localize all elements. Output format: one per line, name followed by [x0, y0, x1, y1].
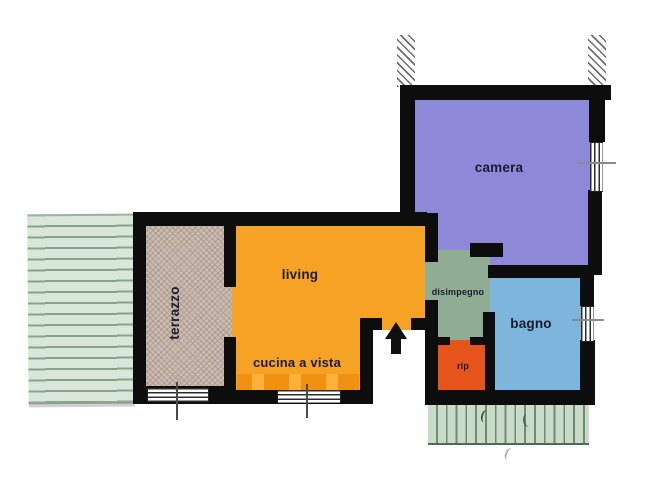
plant-mark-icon	[503, 447, 516, 462]
cucina-window-axis	[306, 384, 308, 418]
wall-bagno-north	[488, 265, 590, 278]
neighbour-wall-hatch-left	[397, 35, 415, 87]
label-cucina: cucina a vista	[242, 356, 352, 369]
wall-terrazzo-living-upper	[224, 222, 236, 287]
counter-joint	[326, 374, 338, 390]
label-bagno: bagno	[495, 317, 567, 331]
label-camera: camera	[449, 161, 549, 175]
terrazzo-window-icon	[147, 388, 209, 402]
bagno-window-icon	[581, 306, 594, 342]
label-terrazzo: terrazzo	[168, 268, 188, 358]
wall-bagno-east-upper	[580, 275, 594, 306]
wall-entry-door-stub-right	[411, 318, 425, 330]
camera-window-axis	[577, 162, 616, 164]
terrazzo-window-axis	[176, 382, 178, 420]
camera-window-icon	[590, 142, 603, 192]
label-living: living	[250, 268, 350, 282]
wall-terrazzo-living-lower	[224, 337, 236, 390]
wall-terrazzo-west	[133, 212, 146, 404]
wall-camera-east-upper	[589, 97, 605, 142]
counter-joint	[252, 374, 264, 390]
label-rip: rip	[438, 362, 488, 371]
floor-plan: camera living cucina a vista terrazzo di…	[0, 0, 650, 478]
label-disimpegno: disimpegno	[427, 288, 489, 297]
wall-camera-disimpegno-stub	[470, 243, 503, 257]
garden-strip-south	[428, 402, 589, 445]
wall-entry-west	[360, 318, 373, 404]
entrance-arrow-stem	[391, 337, 401, 354]
counter-joint	[289, 374, 301, 390]
room-bagno	[490, 268, 582, 395]
wall-rip-door-stub-left	[435, 337, 450, 345]
garden-strip-west	[27, 214, 134, 405]
cucina-window-icon	[277, 390, 341, 403]
bagno-window-axis	[572, 319, 604, 321]
wall-entry-door-stub-left	[360, 318, 382, 330]
wall-south-east	[425, 390, 595, 405]
wall-living-disimpegno	[425, 213, 438, 262]
wall-north-west	[133, 212, 427, 226]
neighbour-wall-hatch-right	[588, 35, 606, 87]
wall-camera-north	[400, 85, 611, 100]
wall-entry-east	[425, 300, 438, 404]
wall-camera-west	[400, 85, 415, 226]
wall-camera-east-lower	[588, 190, 602, 275]
